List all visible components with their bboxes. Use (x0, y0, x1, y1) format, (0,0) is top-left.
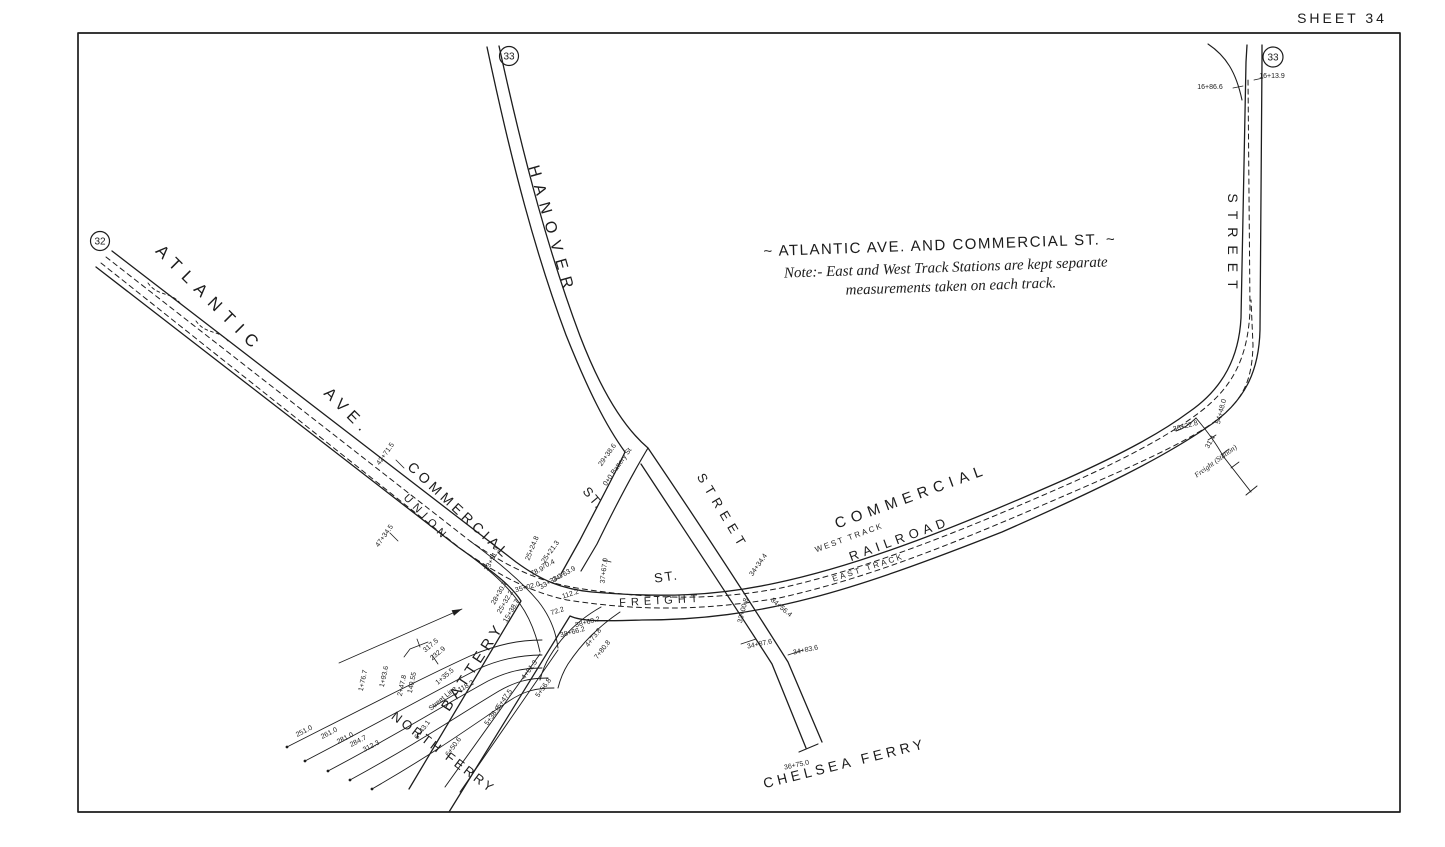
station-tick (390, 533, 398, 541)
station-label: 37+67.0 (599, 558, 609, 584)
note-block: ~ ATLANTIC AVE. AND COMMERCIAL ST. ~ Not… (763, 231, 1116, 299)
station-label: 1+76.7 (358, 669, 369, 692)
station-tick (1231, 462, 1239, 468)
sheet-references: 32 33 33 (91, 47, 1284, 251)
station-label: 16+86.6 (1197, 84, 1223, 91)
street-line (1208, 44, 1242, 100)
station-label: 112.2 (561, 589, 579, 601)
arrow-line (339, 609, 462, 663)
note-line-2: measurements taken on each track. (845, 275, 1056, 298)
street-lines (96, 44, 1262, 812)
street-label-hanover-st: ST. (580, 484, 607, 513)
siding-end-dot (349, 779, 352, 782)
street-line (112, 45, 1247, 595)
station-label: 47+34.5 (375, 524, 395, 549)
station-label: 34+34.4 (749, 553, 769, 578)
station-label: 16+13.9 (1259, 73, 1285, 80)
station-label: 2+47.8 (397, 674, 408, 697)
place-label-freight-station: Freight (Station) (1192, 442, 1239, 480)
station-label: 42+71.5 (376, 442, 396, 467)
street-line (499, 46, 822, 742)
street-line (449, 45, 1262, 812)
street-line (487, 47, 625, 574)
station-label: 7+80.8 (593, 639, 612, 660)
sheet-ref-number: 33 (503, 52, 515, 63)
siding-end-dot (327, 770, 330, 773)
station-label: 25+24.8 (525, 535, 541, 561)
station-label: 72.2 (550, 606, 565, 617)
station-label: 4+73.8 (584, 627, 603, 648)
street-label-street-right: STREET (1225, 193, 1241, 296)
station-label: 34+87.6 (746, 638, 773, 650)
sheet-ref-number: 32 (94, 237, 106, 248)
east-track-line (101, 263, 1253, 608)
station-ticks (390, 78, 1263, 655)
map-border (78, 33, 1400, 812)
siding-end-dot (304, 760, 307, 763)
siding-end-dot (371, 788, 374, 791)
sheet-number-label: SHEET 34 (1297, 10, 1387, 26)
map-canvas: SHEET 34 (0, 0, 1445, 847)
street-label-atlantic: ATLANTIC (152, 241, 268, 357)
street-label-commercial-st: ST. (653, 567, 680, 585)
street-line (96, 267, 521, 789)
track-map-sheet: SHEET 34 (0, 0, 1445, 847)
station-tick (396, 460, 404, 468)
place-label-north-ferry: NORTH FERRY (389, 708, 499, 796)
street-label-chelsea-street: STREET (694, 470, 752, 553)
station-label: 31.4 (1204, 435, 1217, 450)
siding-end-dot (286, 746, 289, 749)
station-label: 34+83.6 (792, 644, 819, 656)
station-label: 36+22.8 (1172, 420, 1199, 433)
station-label: 1+93.6 (379, 665, 390, 688)
station-label: 34+56.4 (769, 597, 793, 619)
siding-length-label: 251.0 (295, 725, 314, 739)
note-line-1: Note:- East and West Track Stations are … (783, 254, 1109, 281)
station-label: 33+33.1 (538, 572, 564, 591)
street-end-cap (799, 744, 818, 752)
station-label: 140.55 (407, 671, 418, 694)
arrow-head (452, 609, 462, 616)
station-label: 33+00.8 (737, 597, 750, 624)
track-lines (101, 78, 1253, 608)
sheet-ref-number: 33 (1267, 53, 1279, 64)
